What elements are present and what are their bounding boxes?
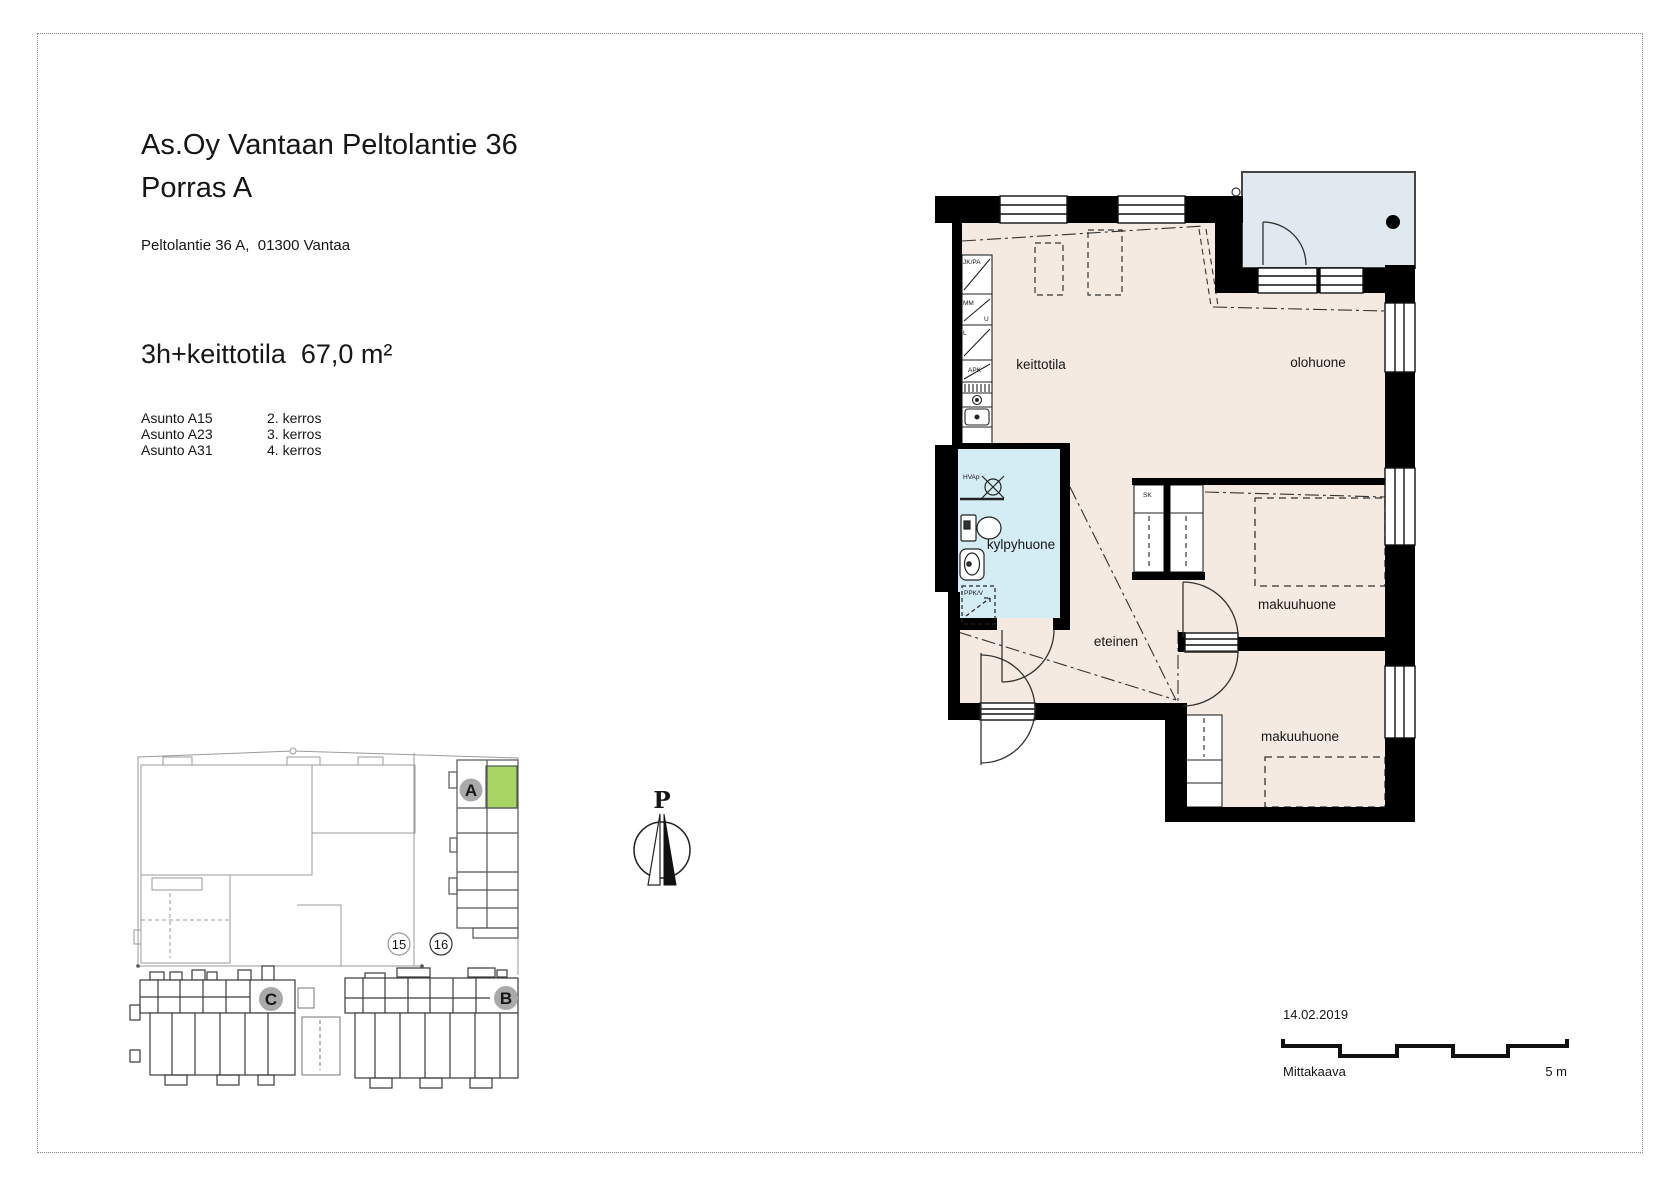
window-bedroom1: [1385, 468, 1415, 545]
building-a-label: A: [465, 781, 477, 800]
microwave-label: MM: [963, 300, 974, 307]
scale-label: Mittakaava: [1283, 1064, 1347, 1079]
drawing-layer: JK/PA MM U L APK: [0, 0, 1680, 1187]
building-a: [449, 760, 518, 938]
building-b: [345, 968, 518, 1088]
plot-number-16: 16: [430, 933, 452, 955]
floorplan-sheet: As.Oy Vantaan Peltolantie 36 Porras A Pe…: [0, 0, 1680, 1187]
room-label-hall: eteinen: [1094, 634, 1138, 649]
window-balcony-wall: [1320, 268, 1363, 293]
room-label-bathroom: kylpyhuone: [987, 537, 1055, 552]
stove-label: L: [963, 330, 967, 337]
balcony-door-threshold: [1258, 268, 1317, 293]
building-c-label: C: [265, 990, 277, 1009]
oven-label: U: [984, 316, 989, 323]
fridge-label: JK/PA: [963, 259, 981, 266]
drawing-date: 14.02.2019: [1283, 1007, 1348, 1022]
washer-reservation-label: PPK/V: [964, 590, 984, 597]
window-bedroom2: [1385, 666, 1415, 738]
window-kitchen: [1000, 196, 1067, 223]
room-label-kitchen: keittotila: [1016, 357, 1066, 372]
window-livingroom-right: [1385, 303, 1415, 372]
parking-structure: [134, 757, 415, 963]
room-label-bedroom2: makuuhuone: [1261, 729, 1339, 744]
room-label-livingroom: olohuone: [1290, 355, 1346, 370]
balcony-drain-icon: [1386, 215, 1400, 229]
plot-number-15: 15: [388, 933, 410, 955]
bedroom2-closet: [1186, 715, 1222, 807]
kitchen-cabinets: [962, 255, 992, 447]
downpipe-icon: [1232, 188, 1240, 196]
shower-drain-icon: [982, 476, 1004, 498]
balcony: [1232, 172, 1415, 268]
title-block: 14.02.2019 Mittakaava 5 m: [1283, 1007, 1567, 1079]
scale-bar: [1283, 1039, 1567, 1056]
highlighted-apartment: [486, 766, 517, 808]
site-plan: A: [130, 748, 518, 1088]
closet-sk-label: SK: [1143, 492, 1152, 499]
drying-rack-icon: [965, 384, 989, 392]
dishwasher-label: APK: [968, 367, 982, 374]
bedroom2-door-threshold: [1185, 633, 1238, 652]
room-label-bedroom1: makuuhuone: [1258, 597, 1336, 612]
scale-max-label: 5 m: [1545, 1064, 1567, 1079]
building-c: [130, 966, 295, 1085]
svg-text:15: 15: [392, 937, 406, 952]
entrance-threshold: [980, 703, 1035, 720]
building-b-label: B: [500, 989, 512, 1008]
north-arrow: P: [634, 787, 690, 885]
site-connector: [298, 988, 340, 1075]
washbasin-icon: [960, 549, 984, 580]
north-label: P: [653, 787, 670, 814]
apartment-floorplan: JK/PA MM U L APK: [935, 172, 1415, 822]
shower-valve-label: HVAp: [963, 474, 980, 481]
svg-text:16: 16: [434, 937, 448, 952]
window-livingroom-top: [1118, 196, 1185, 223]
